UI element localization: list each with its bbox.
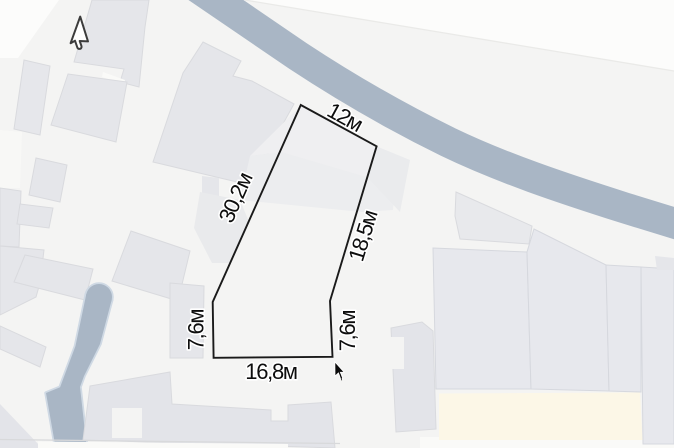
svg-text:7,6м: 7,6м	[335, 311, 360, 352]
svg-text:16,8м: 16,8м	[245, 359, 297, 384]
svg-text:7,6м: 7,6м	[184, 310, 209, 351]
